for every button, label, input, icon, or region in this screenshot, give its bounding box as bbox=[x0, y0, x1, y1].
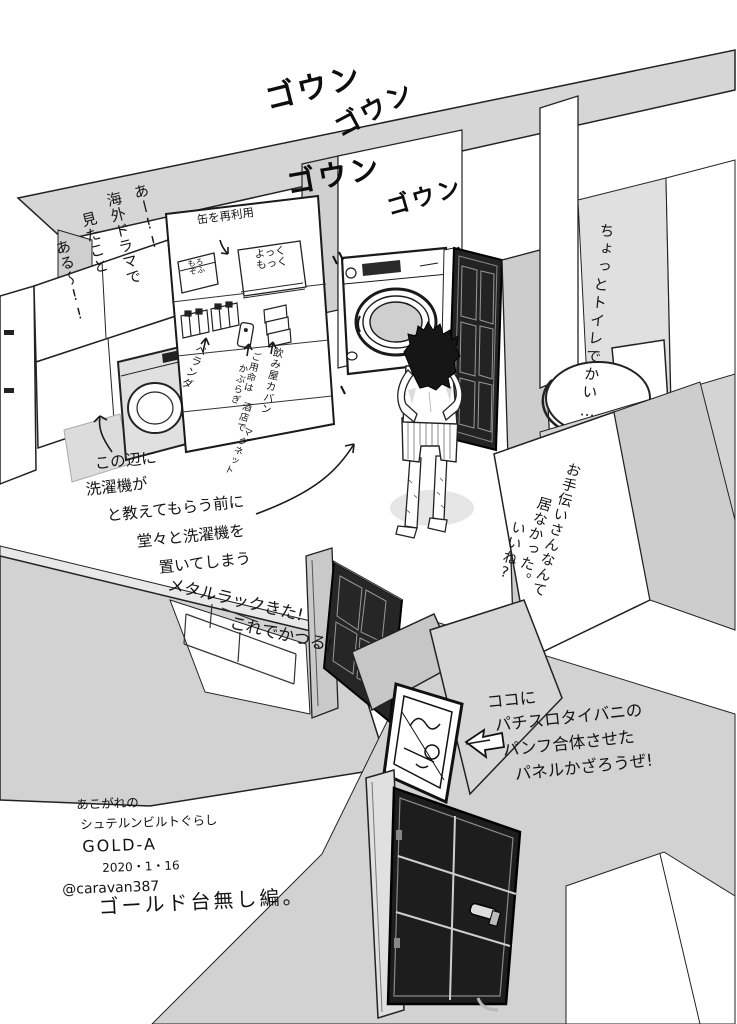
toilet-left-wall bbox=[540, 96, 578, 388]
illustration-canvas: ゴウン ゴウン ゴウン ゴウン あー!! 海外ドラマで 見たこと ある〜!! 缶… bbox=[0, 0, 737, 1024]
stacked-boxes bbox=[264, 305, 291, 347]
credit-line-1: あこがれの bbox=[76, 796, 139, 813]
label-tin-morozofu: もろ ぞふ bbox=[187, 258, 206, 278]
fridge bbox=[0, 286, 36, 484]
credit-line-3: GOLD-A bbox=[82, 835, 157, 856]
whiteboard-shelf bbox=[166, 196, 334, 452]
arrow-to-corridor bbox=[256, 444, 354, 514]
label-tin-yokkumokku: よっく もっく bbox=[254, 246, 288, 272]
credit-line-4: 2020・1・16 bbox=[102, 859, 180, 875]
